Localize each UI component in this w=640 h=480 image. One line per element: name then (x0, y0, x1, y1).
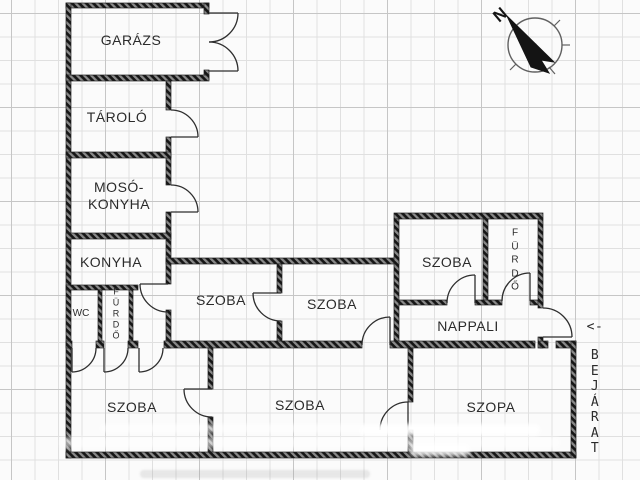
watermark-band (60, 437, 560, 448)
door-moso-konyha (171, 185, 198, 212)
door-wc (72, 348, 96, 372)
room-label-garazs: GARÁZS (101, 32, 162, 48)
door-szoba-center-bottom (362, 317, 390, 345)
entrance-arrow: <- (587, 319, 604, 335)
door-szoba-mid (253, 293, 281, 321)
watermark-band (140, 470, 370, 478)
room-label-moso-konyha-line2: KONYHA (88, 196, 150, 212)
compass-north-letter: N (489, 4, 511, 26)
room-label-moso-konyha-line1: MOSÓ- (94, 179, 144, 195)
room-label-szoba-top-right: SZOBA (422, 254, 472, 270)
door-szoba-top-right (447, 275, 475, 303)
floor-plan-page: N GARÁZS TÁROLÓ MOSÓ- KONYHA KONYHA WC F… (0, 0, 640, 480)
watermark-band (410, 444, 470, 456)
entrance-label: B E J Á R A T (591, 348, 599, 457)
room-label-szoba-bottom-left: SZOBA (107, 399, 157, 415)
door-szoba-bottom (184, 389, 212, 417)
watermark-band (360, 425, 540, 436)
room-label-furdo-top-right: F Ü R D Ő (511, 226, 519, 294)
door-tarolo (171, 110, 198, 137)
room-label-wc: WC (73, 306, 90, 322)
door-furdo-small (104, 348, 128, 372)
room-label-szoba-mid-left: SZOBA (196, 292, 246, 308)
walls (66, 3, 576, 458)
room-label-szoba-bottom-center: SZOBA (275, 397, 325, 413)
room-label-szoba-bottom-right: SZOPA (467, 399, 516, 415)
room-label-furdo-small: F Ü R D Ő (112, 287, 119, 342)
door-garage (209, 13, 238, 71)
door-hall (140, 284, 168, 312)
room-label-nappali: NAPPALI (437, 318, 499, 334)
room-label-szoba-mid-center: SZOBA (307, 296, 357, 312)
door-entrance (543, 308, 572, 337)
door-hall-bottom (139, 348, 163, 372)
room-label-tarolo: TÁROLÓ (87, 109, 148, 125)
room-label-konyha: KONYHA (80, 254, 142, 270)
compass-north-icon: N (489, 4, 570, 74)
